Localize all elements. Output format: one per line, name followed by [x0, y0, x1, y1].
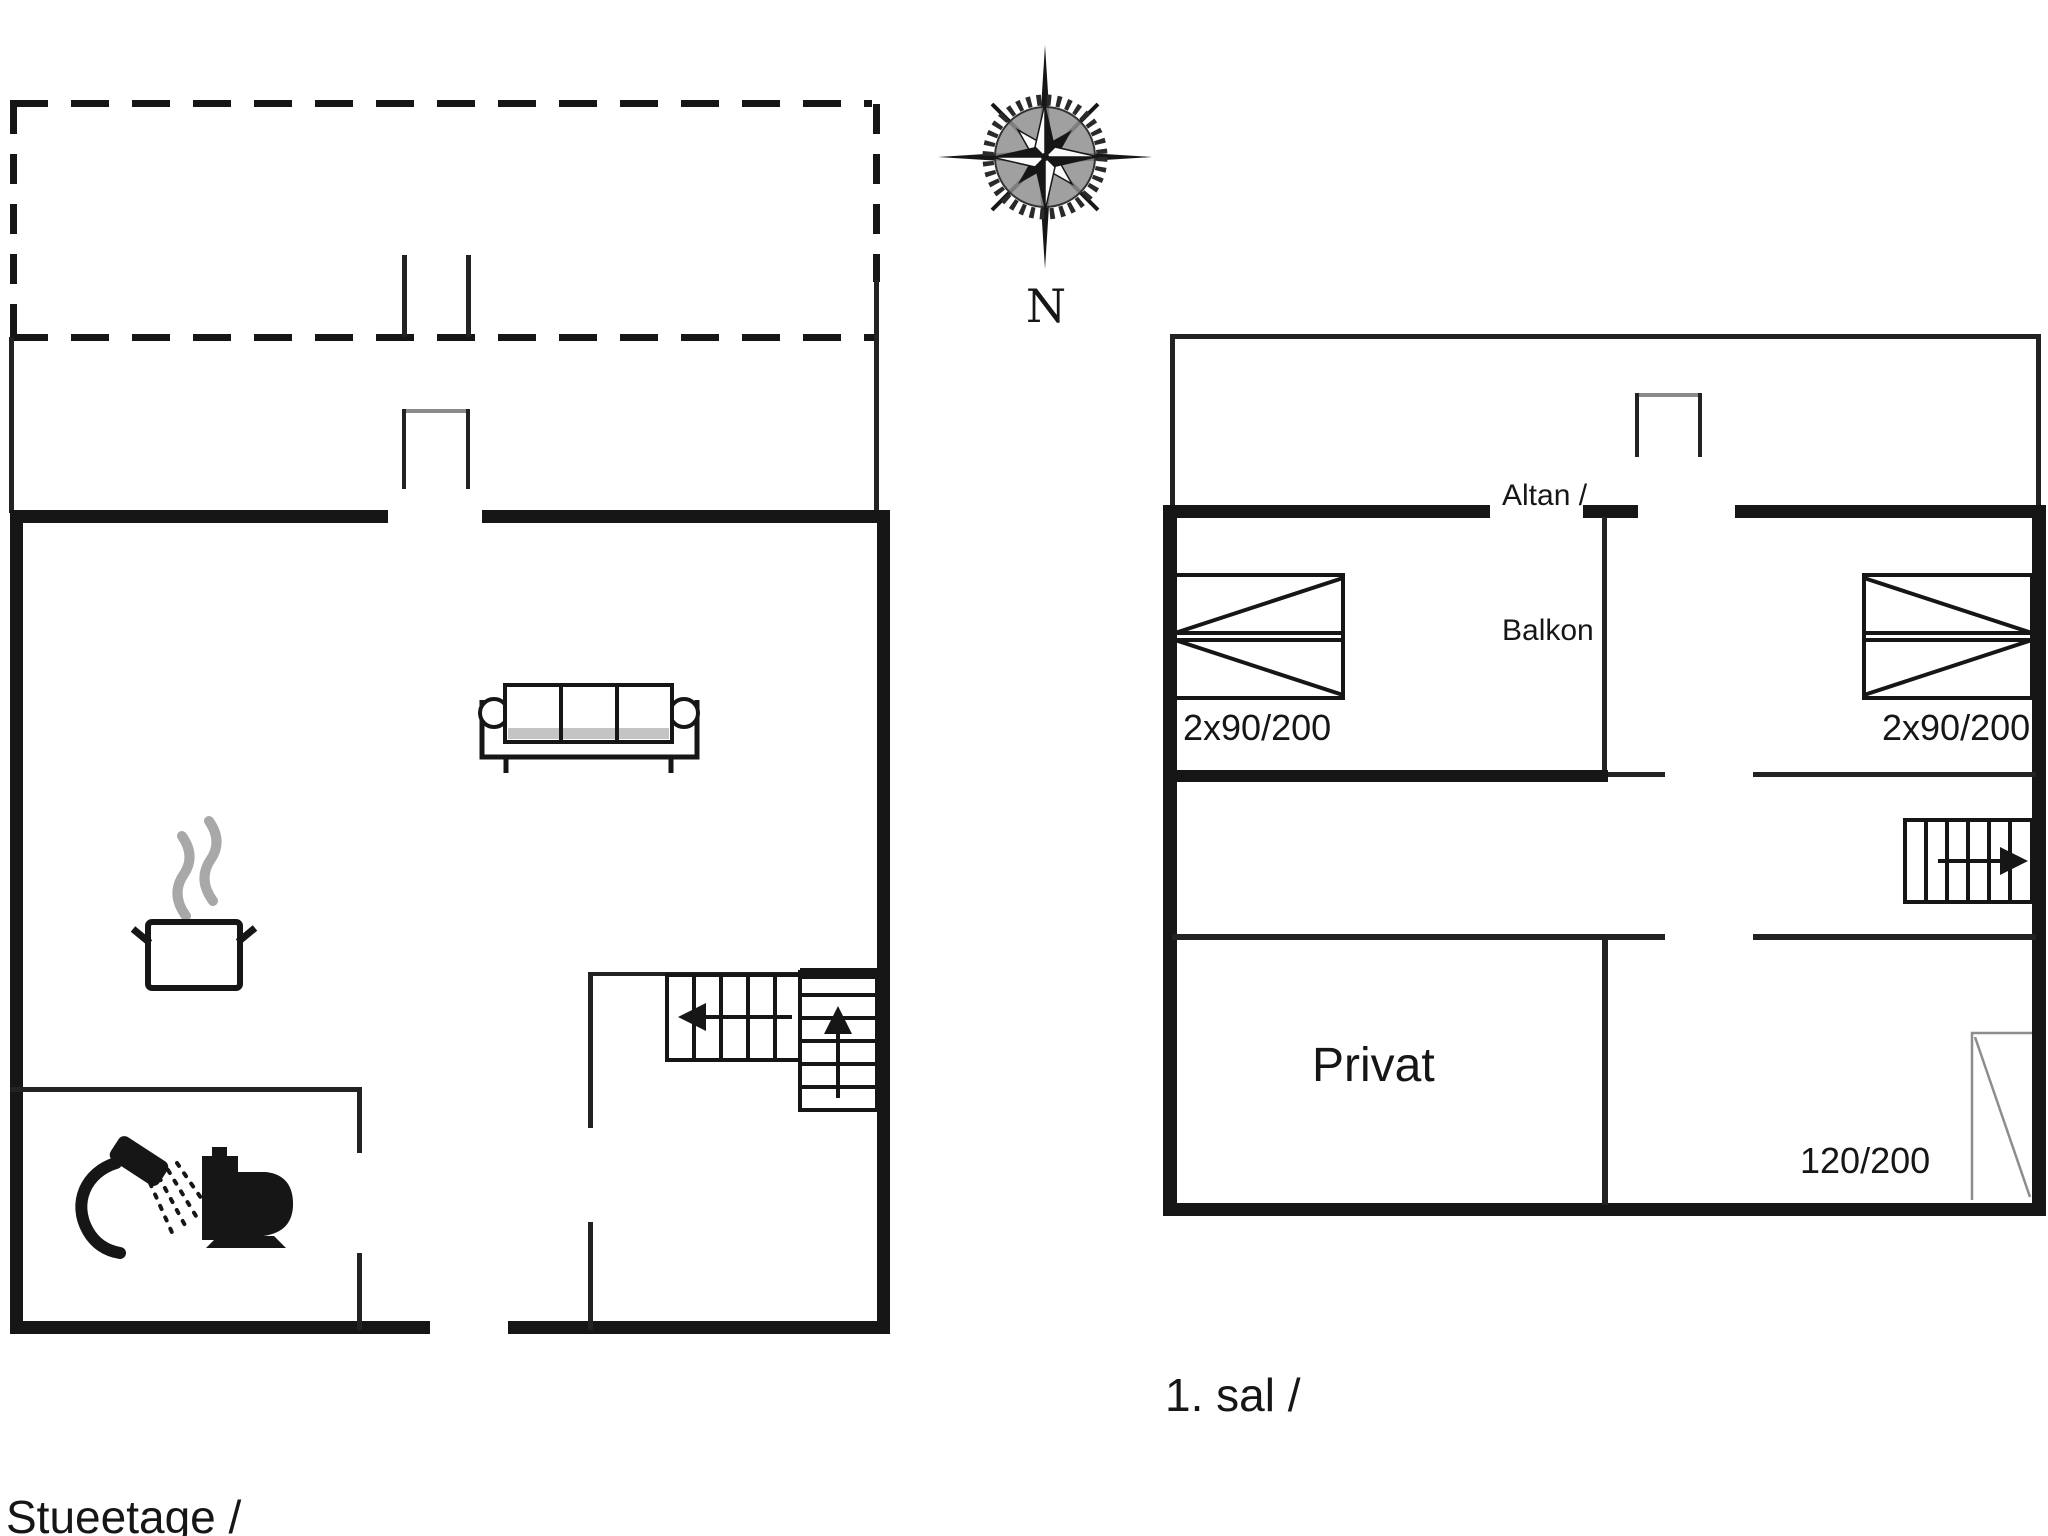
- stairs-right-arrow-icon: [1905, 820, 2032, 902]
- single-bed-120-icon: [1972, 1033, 2032, 1200]
- balcony-label: Altan / Balkon: [1502, 383, 1594, 743]
- cooking-pot-icon: [133, 821, 255, 988]
- ground-floor-title: Stueetage / Erdgeschoss: [6, 1350, 272, 1536]
- bed-right-size-label: 2x90/200: [1882, 710, 2030, 746]
- balcony-label-line1: Altan /: [1502, 473, 1594, 518]
- stairs-up-arrow-icon: [800, 972, 877, 1110]
- floor-plan-canvas: N Altan / Balkon 2x90/200 2x90/200 Priva…: [0, 0, 2048, 1536]
- hand-shower-icon: [81, 1133, 210, 1253]
- bed-left-size-label: 2x90/200: [1183, 710, 1331, 746]
- stairs-left-arrow-icon: [667, 975, 800, 1060]
- ground-floor-title-line1: Stueetage /: [6, 1484, 272, 1536]
- balcony-label-line2: Balkon: [1502, 608, 1594, 653]
- upper-floor-title: 1. sal / Obergeschoss: [1165, 1228, 1462, 1536]
- double-bed-left-icon: [1175, 575, 1343, 698]
- upper-floor-title-line1: 1. sal /: [1165, 1362, 1462, 1429]
- double-bed-right-icon: [1864, 575, 2032, 698]
- privat-room-label: Privat: [1312, 1042, 1435, 1090]
- bed-bottom-size-label: 120/200: [1800, 1143, 1930, 1179]
- compass-north-label: N: [1022, 283, 1070, 329]
- toilet-icon: [202, 1147, 293, 1248]
- sofa-icon: [480, 685, 698, 773]
- compass-rose-icon: [938, 45, 1152, 269]
- furniture-layer: [0, 0, 2048, 1536]
